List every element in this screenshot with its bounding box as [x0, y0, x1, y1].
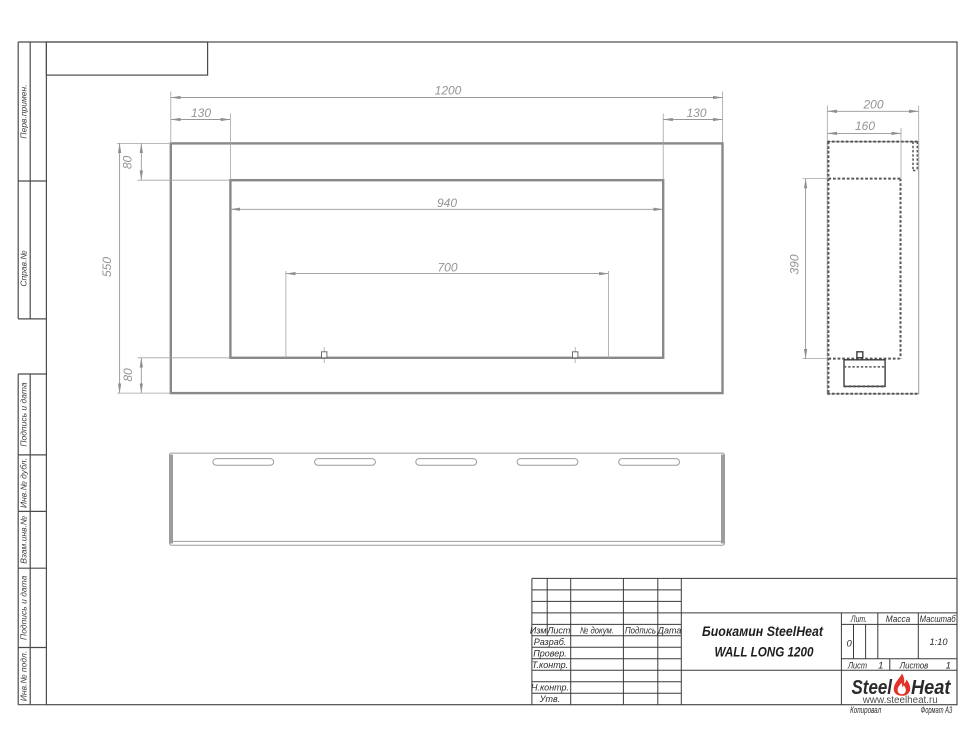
svg-text:Взам.инв.№: Взам.инв.№ — [19, 516, 29, 564]
svg-text:Лист: Лист — [847, 661, 867, 672]
svg-text:Н.контр.: Н.контр. — [531, 683, 569, 693]
svg-text:1: 1 — [946, 661, 951, 672]
svg-text:Лит.: Лит. — [850, 614, 867, 625]
svg-text:№ докум.: № докум. — [580, 625, 614, 635]
svg-text:700: 700 — [437, 260, 457, 274]
svg-text:130: 130 — [686, 106, 706, 120]
svg-text:Копировал: Копировал — [850, 705, 881, 715]
svg-text:Подпись: Подпись — [625, 625, 656, 635]
svg-text:Инв.№ дубл.: Инв.№ дубл. — [19, 458, 29, 508]
svg-text:Утв.: Утв. — [539, 694, 560, 704]
svg-text:Т.контр.: Т.контр. — [532, 660, 568, 670]
svg-text:80: 80 — [121, 368, 135, 382]
svg-text:160: 160 — [855, 119, 875, 133]
svg-text:Биокамин SteelHeat: Биокамин SteelHeat — [702, 623, 824, 639]
svg-text:80: 80 — [121, 156, 135, 170]
svg-text:Разраб.: Разраб. — [534, 637, 567, 647]
svg-text:940: 940 — [437, 196, 457, 210]
svg-text:200: 200 — [862, 98, 883, 112]
svg-text:130: 130 — [191, 106, 211, 120]
svg-text:Масштаб: Масштаб — [920, 614, 957, 625]
svg-text:390: 390 — [788, 254, 802, 274]
svg-text:0: 0 — [847, 638, 853, 649]
svg-text:Подпись и дата: Подпись и дата — [19, 382, 29, 447]
svg-text:Инв.№ подл.: Инв.№ подл. — [19, 651, 29, 701]
svg-text:Провер.: Провер. — [533, 648, 567, 658]
svg-text:550: 550 — [100, 257, 114, 277]
svg-text:Масса: Масса — [886, 614, 911, 625]
svg-text:1: 1 — [878, 661, 883, 672]
svg-text:Формат А3: Формат А3 — [921, 705, 953, 715]
svg-text:Справ.№: Справ.№ — [19, 250, 29, 286]
svg-text:Перв.примен.: Перв.примен. — [19, 84, 29, 138]
svg-text:1200: 1200 — [435, 84, 462, 98]
svg-text:WALL LONG 1200: WALL LONG 1200 — [715, 643, 814, 659]
svg-text:Лист: Лист — [546, 625, 571, 635]
svg-text:Дата: Дата — [657, 625, 682, 635]
svg-text:Подпись и дата: Подпись и дата — [19, 575, 29, 640]
svg-text:Листов: Листов — [899, 661, 928, 672]
svg-text:1:10: 1:10 — [930, 637, 949, 648]
